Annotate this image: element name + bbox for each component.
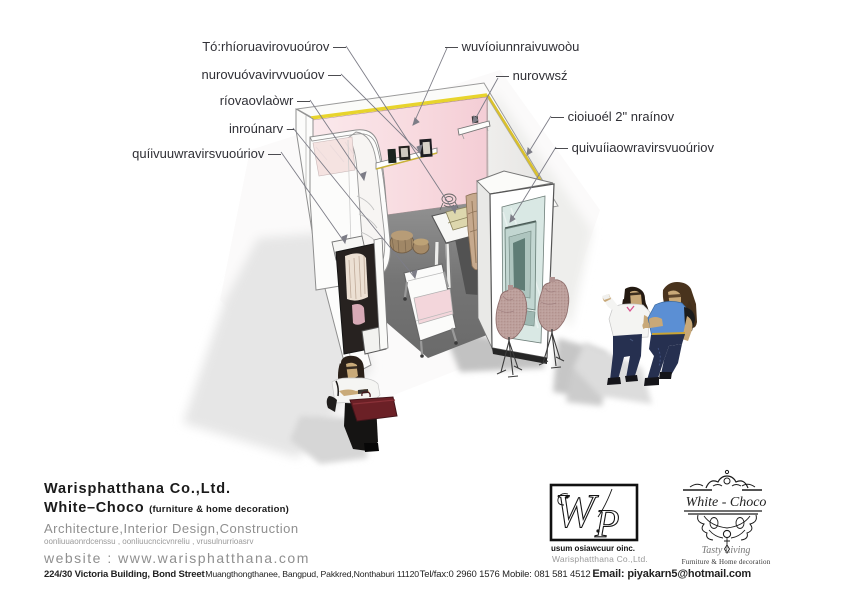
svg-text:W: W xyxy=(555,485,599,538)
svg-text:P: P xyxy=(594,501,619,546)
